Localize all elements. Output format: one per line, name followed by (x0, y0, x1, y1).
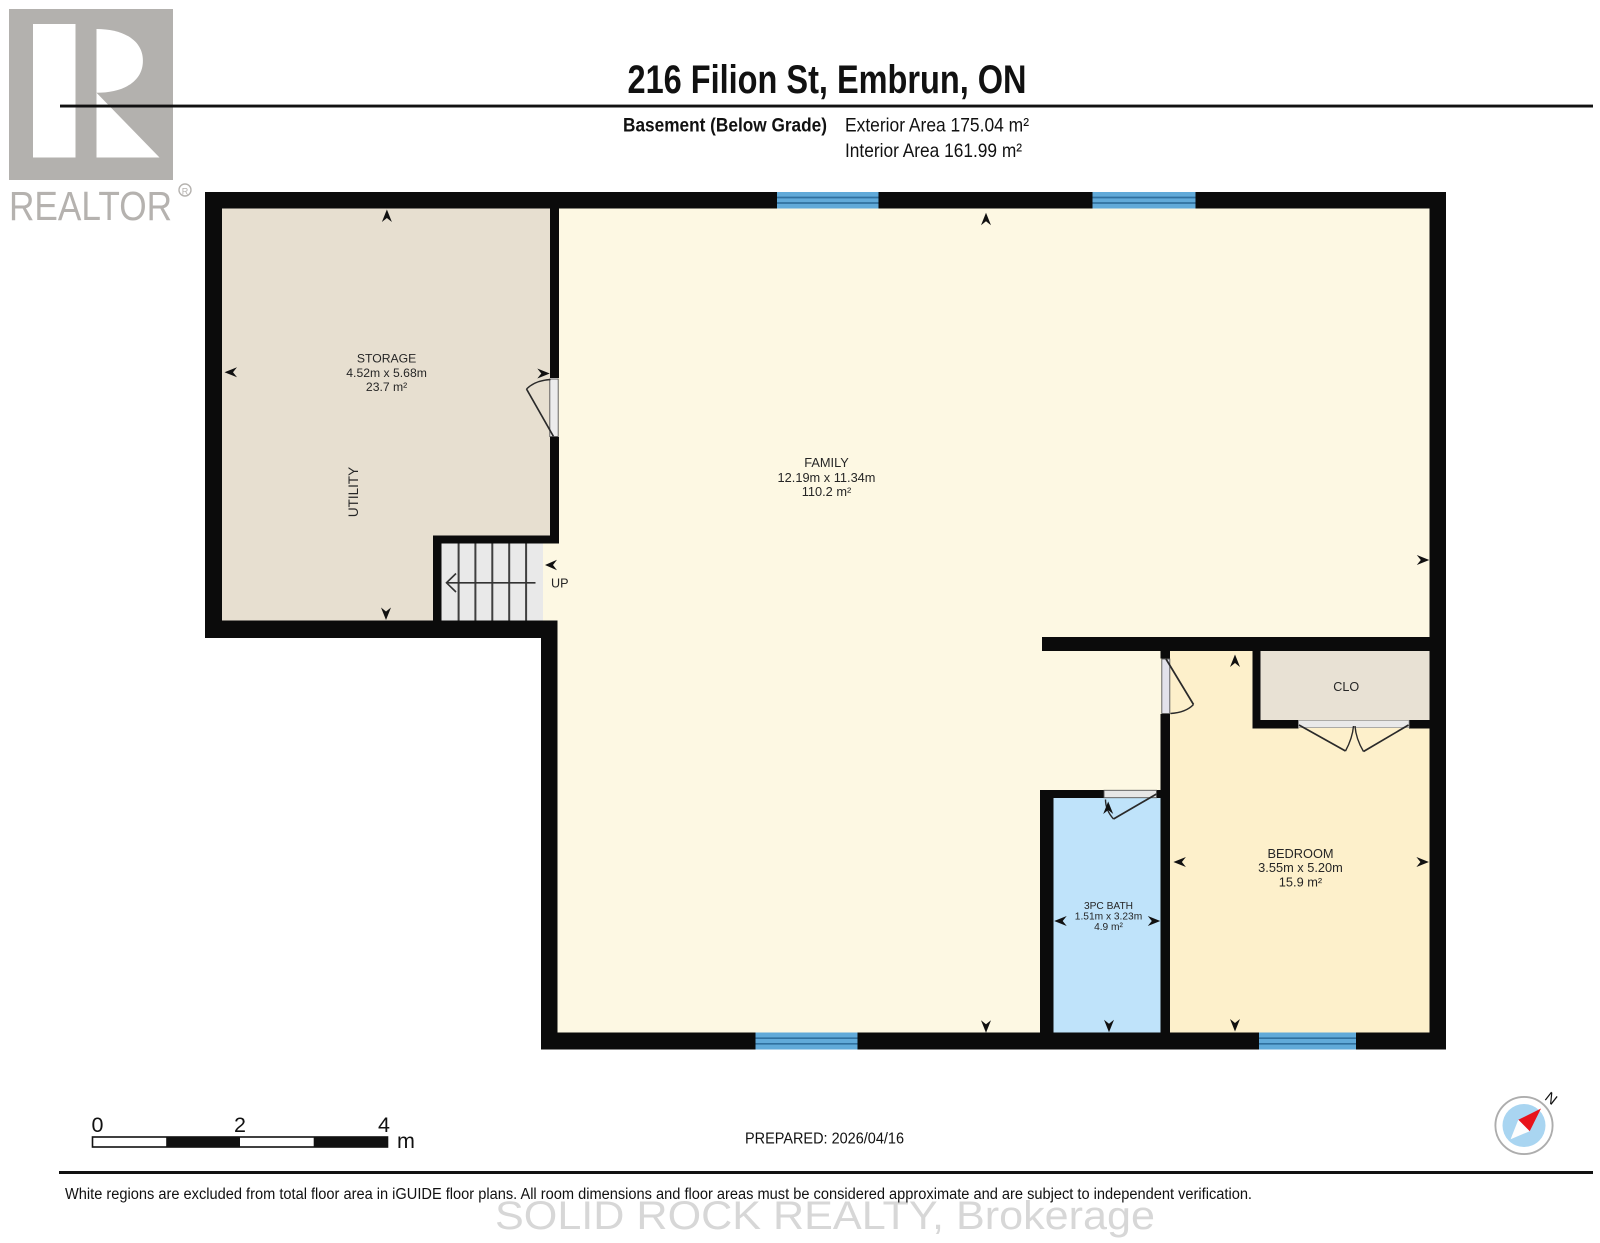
svg-text:UP: UP (551, 577, 569, 591)
svg-text:4: 4 (378, 1113, 390, 1137)
svg-text:4.52m x 5.68m: 4.52m x 5.68m (346, 366, 427, 380)
svg-text:0: 0 (92, 1113, 104, 1137)
svg-text:1.51m x 3.23m: 1.51m x 3.23m (1075, 912, 1142, 923)
svg-text:PREPARED: 2026/04/16: PREPARED: 2026/04/16 (745, 1131, 904, 1148)
svg-text:216 Filion St, Embrun, ON: 216 Filion St, Embrun, ON (628, 58, 1027, 102)
svg-text:STORAGE: STORAGE (357, 352, 416, 366)
svg-text:R: R (182, 187, 189, 197)
svg-text:3PC BATH: 3PC BATH (1084, 901, 1133, 912)
svg-text:Basement (Below Grade): Basement (Below Grade) (623, 115, 827, 137)
svg-text:110.2 m²: 110.2 m² (802, 484, 852, 499)
svg-text:BEDROOM: BEDROOM (1267, 846, 1333, 861)
svg-text:Exterior Area 175.04 m²: Exterior Area 175.04 m² (845, 115, 1029, 137)
svg-text:Interior Area 161.99 m²: Interior Area 161.99 m² (845, 140, 1022, 162)
svg-text:White regions are excluded fro: White regions are excluded from total fl… (65, 1186, 1252, 1203)
svg-text:REALTOR: REALTOR (9, 183, 172, 229)
svg-text:12.19m x 11.34m: 12.19m x 11.34m (778, 470, 876, 485)
svg-text:4.9 m²: 4.9 m² (1094, 922, 1123, 933)
svg-text:CLO: CLO (1333, 680, 1359, 694)
svg-text:UTILITY: UTILITY (346, 467, 361, 517)
svg-text:15.9 m²: 15.9 m² (1279, 874, 1323, 889)
svg-text:m: m (397, 1129, 415, 1153)
svg-text:23.7 m²: 23.7 m² (366, 380, 407, 394)
svg-text:2: 2 (234, 1113, 246, 1137)
svg-text:3.55m x 5.20m: 3.55m x 5.20m (1258, 860, 1343, 875)
svg-text:FAMILY: FAMILY (804, 455, 849, 470)
